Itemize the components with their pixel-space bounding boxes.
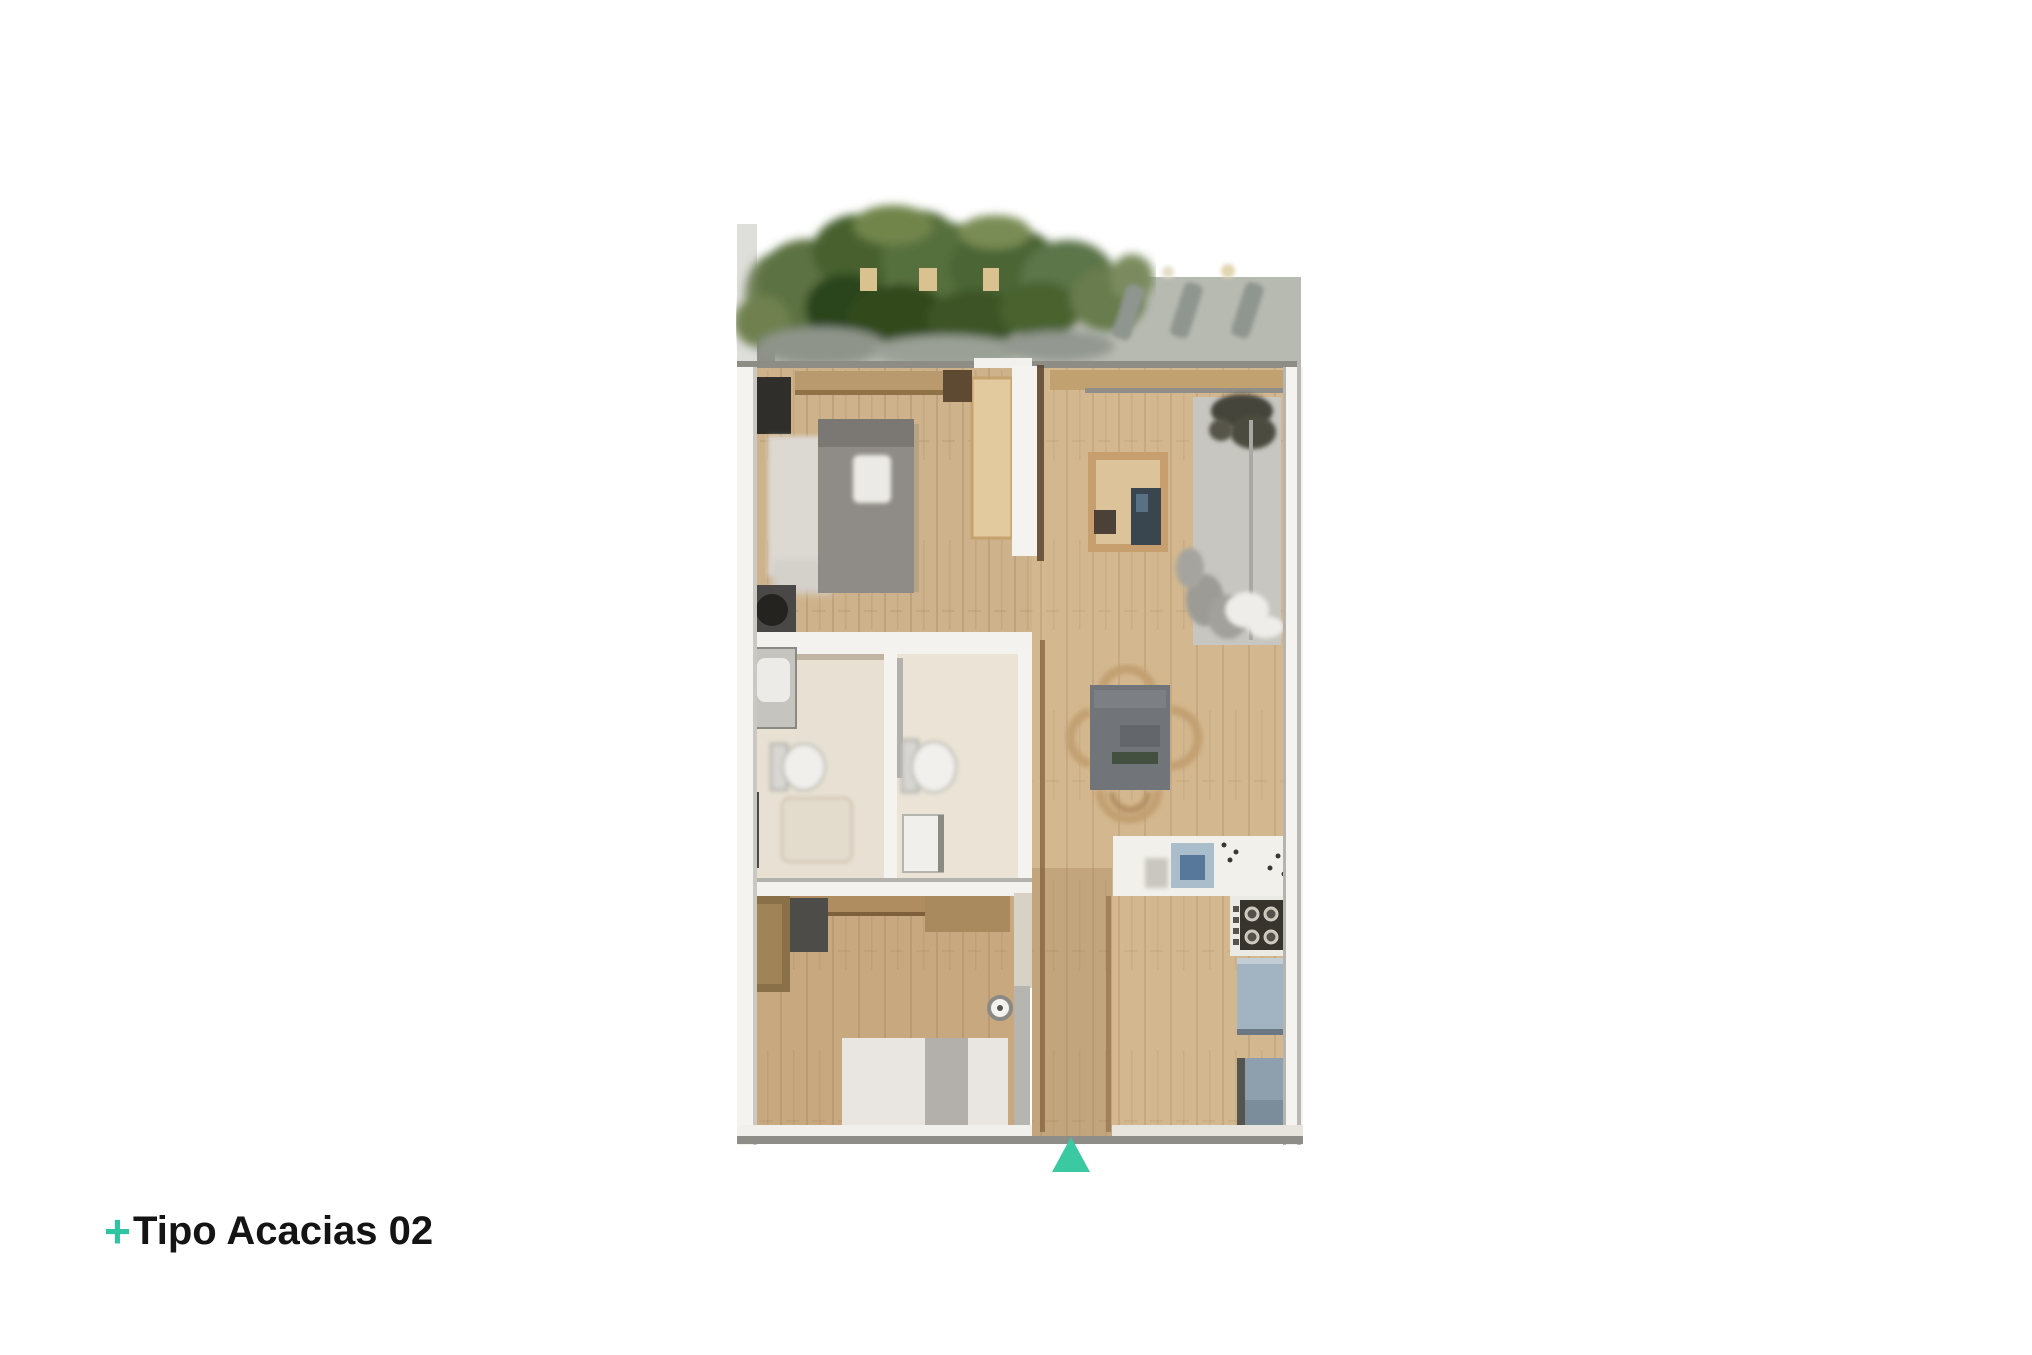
- svg-text:+: +: [104, 1205, 131, 1257]
- svg-text:Tipo Acacias 02: Tipo Acacias 02: [133, 1209, 433, 1253]
